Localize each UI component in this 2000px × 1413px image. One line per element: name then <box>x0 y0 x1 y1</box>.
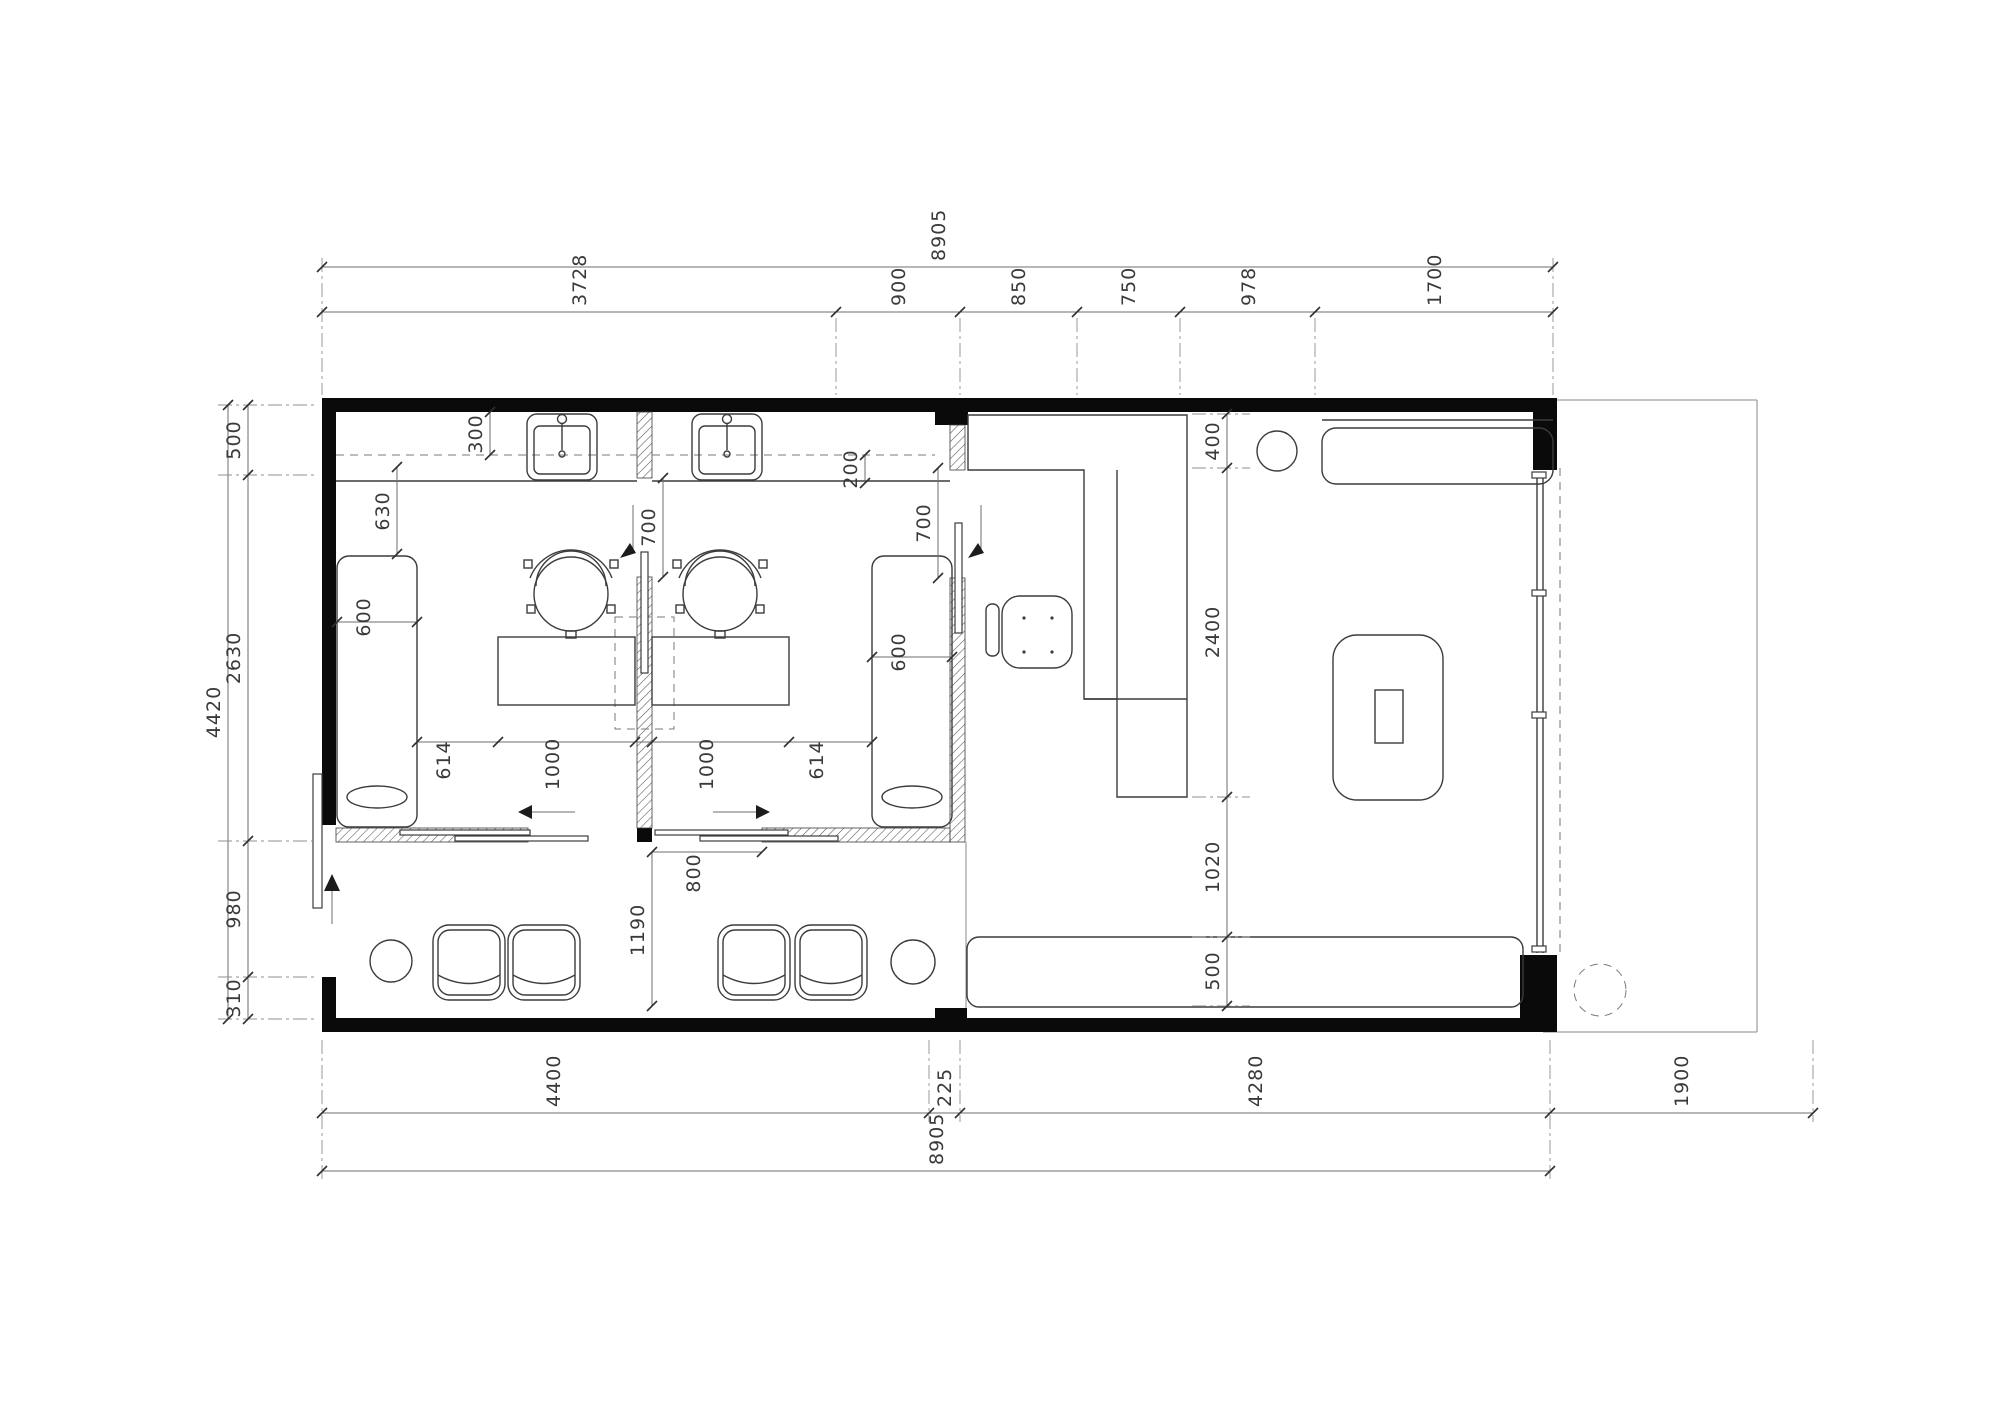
backroom-door-leaf <box>955 523 962 633</box>
armchair-2 <box>508 925 580 1000</box>
slide-arrow-right <box>756 805 770 819</box>
floor-plan-page: 8905 3728 900 850 750 978 1700 4400 225 … <box>0 0 2000 1413</box>
dim-label: 1700 <box>1424 254 1446 306</box>
dim-label: 500 <box>223 420 245 459</box>
glazed-wall <box>1532 472 1546 953</box>
dim-label: 1190 <box>627 904 649 956</box>
dim-label: 1020 <box>1202 841 1224 893</box>
dim-label: 1000 <box>696 738 718 790</box>
sliding-door-room2-a <box>655 830 788 835</box>
dim-label: 1000 <box>542 738 564 790</box>
dim-label: 400 <box>1202 421 1224 460</box>
partition-center-upper <box>637 412 652 478</box>
floor-plan-drawing: 8905 3728 900 850 750 978 1700 4400 225 … <box>0 0 2000 1413</box>
dim-label: 2630 <box>223 632 245 684</box>
armchair-3 <box>718 925 790 1000</box>
wall-left-upper <box>322 398 336 825</box>
dim-label: 978 <box>1238 267 1260 306</box>
dim-label: 980 <box>223 889 245 928</box>
dim-label: 900 <box>888 267 910 306</box>
dim-label: 850 <box>1008 267 1030 306</box>
partition-backroom-upper <box>950 425 965 470</box>
terrace-outline <box>1543 400 1757 1032</box>
bench-pier <box>935 1008 967 1020</box>
wall-bottom <box>322 1018 1557 1032</box>
dim-label: 750 <box>1118 267 1140 306</box>
dim-label: 2400 <box>1202 606 1224 658</box>
armchair-1 <box>433 925 505 1000</box>
dim-label: 310 <box>223 978 245 1017</box>
reception-desk <box>968 415 1187 797</box>
office-chair <box>986 596 1072 668</box>
entrance-door-leaf <box>313 774 322 908</box>
sink-2 <box>692 414 762 480</box>
dim-label: 8905 <box>928 209 950 261</box>
dim-label: 4400 <box>543 1055 565 1107</box>
sliding-door-room2-b <box>700 836 838 841</box>
side-table-1 <box>370 940 412 982</box>
slide-arrow-left <box>518 805 532 819</box>
desk-room2 <box>652 637 789 705</box>
wall-top <box>322 398 1557 412</box>
dimension-lines <box>218 258 1818 1180</box>
backroom-door-arrow <box>968 543 984 558</box>
sink-1 <box>527 414 597 480</box>
armchair-4 <box>795 925 867 1000</box>
dim-label: 200 <box>840 449 862 488</box>
stool <box>1257 431 1297 471</box>
side-table-2 <box>891 940 935 984</box>
styling-chair-1 <box>524 550 618 638</box>
entry-arrow <box>324 874 340 891</box>
dim-label: 800 <box>683 853 705 892</box>
massage-bed-2 <box>872 556 952 827</box>
jamb-backroom <box>935 412 968 425</box>
partition-door-arrow <box>620 543 636 558</box>
reception-area <box>967 415 1553 1007</box>
dim-label: 614 <box>433 740 455 779</box>
wall-right-bottom-stub <box>1520 955 1557 1032</box>
dim-label: 4280 <box>1245 1055 1267 1107</box>
partition-bottom-cap <box>637 828 652 842</box>
sliding-door-room1-a <box>400 830 530 835</box>
dim-label: 700 <box>638 507 660 546</box>
sliding-door-room1-b <box>455 836 588 841</box>
bench <box>967 937 1523 1007</box>
dim-label: 500 <box>1202 951 1224 990</box>
dim-label: 700 <box>913 503 935 542</box>
dim-label: 600 <box>888 632 910 671</box>
lounge-table <box>1333 635 1443 800</box>
dim-label: 3728 <box>569 254 591 306</box>
desk-room1 <box>498 637 635 705</box>
dim-label: 4420 <box>203 686 225 738</box>
dim-label: 614 <box>806 740 828 779</box>
dim-label: 630 <box>372 491 394 530</box>
massage-bed-1 <box>337 556 417 827</box>
dim-label: 600 <box>353 597 375 636</box>
dim-label: 1900 <box>1671 1055 1693 1107</box>
dim-label: 8905 <box>926 1113 948 1165</box>
partition-door-leaf <box>641 552 648 673</box>
styling-chair-2 <box>673 550 767 638</box>
dim-label: 300 <box>465 414 487 453</box>
dim-label: 225 <box>934 1068 956 1107</box>
lounge-counter <box>1322 420 1553 484</box>
tree-dashed-circle <box>1574 964 1626 1016</box>
